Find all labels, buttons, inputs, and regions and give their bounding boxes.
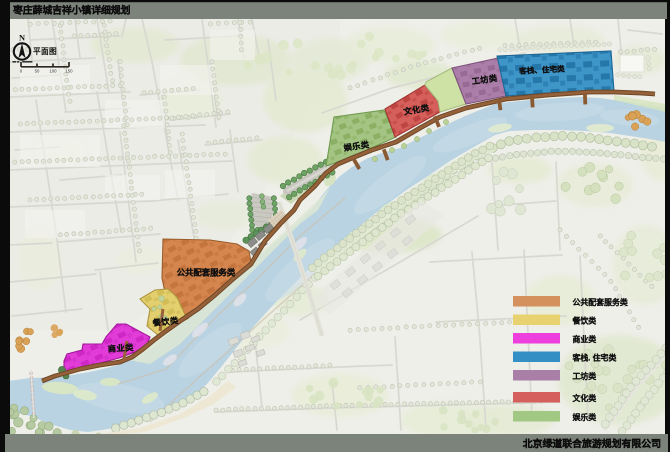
svg-text:100: 100: [49, 69, 57, 74]
svg-text:商业类: 商业类: [573, 334, 597, 344]
svg-text:50: 50: [35, 69, 40, 74]
svg-text:娱乐类: 娱乐类: [573, 412, 597, 422]
svg-text:公共配套服务类: 公共配套服务类: [573, 297, 628, 307]
svg-text:公共配套服务类: 公共配套服务类: [177, 268, 236, 278]
svg-text:150: 150: [65, 69, 73, 74]
svg-text:枣庄薛城吉祥小镇详细规划: 枣庄薛城吉祥小镇详细规划: [12, 4, 131, 17]
svg-text:工坊类: 工坊类: [573, 371, 597, 381]
svg-text:餐饮类: 餐饮类: [572, 315, 597, 325]
svg-text:文化类: 文化类: [573, 393, 597, 403]
svg-text:商业类: 商业类: [107, 342, 134, 354]
svg-text:平面图: 平面图: [33, 47, 57, 56]
svg-text:N: N: [19, 34, 25, 43]
svg-text:北京绿道联合旅游规划有限公司: 北京绿道联合旅游规划有限公司: [523, 437, 661, 450]
svg-text:客栈. 住宅类: 客栈. 住宅类: [572, 352, 617, 362]
